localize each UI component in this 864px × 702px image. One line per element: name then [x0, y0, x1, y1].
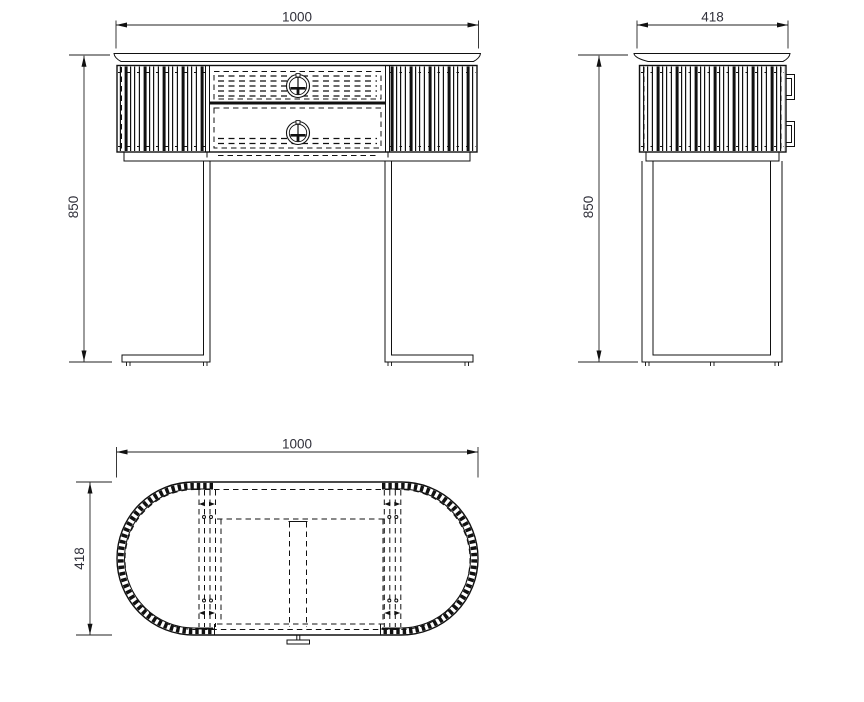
- front-width-dimension: 1000: [116, 10, 479, 49]
- front-leg-feet-pads: [127, 362, 469, 366]
- front-leg-left: [122, 161, 210, 362]
- front-drawer-handle-top: [287, 74, 310, 98]
- plan-hidden-divider: [289, 522, 308, 628]
- side-plinth: [646, 152, 779, 161]
- plan-depth-dimension-label: 418: [72, 547, 87, 570]
- console-table-drawing: 1000 850: [0, 0, 864, 702]
- plan-width-dimension-label: 1000: [282, 437, 312, 452]
- plan-hidden-drawer-box: [217, 519, 387, 624]
- side-view: 418 850: [578, 10, 795, 367]
- plan-view: 1000 418: [72, 437, 478, 645]
- front-slat-panel-right: [390, 67, 476, 152]
- side-width-dimension-label: 418: [701, 10, 724, 25]
- front-width-dimension-label: 1000: [282, 10, 312, 25]
- side-drawer-edge-bottom: [786, 122, 795, 147]
- front-drawer-handle-bottom: [287, 121, 310, 145]
- plan-width-dimension: 1000: [117, 437, 479, 478]
- front-height-dimension: 850: [66, 55, 112, 362]
- front-height-dimension-label: 850: [66, 196, 81, 219]
- side-drawer-edge-top: [786, 75, 795, 100]
- plan-hidden-carcass-outline: [125, 490, 470, 630]
- side-height-dimension-label: 850: [581, 196, 596, 219]
- technical-drawing-canvas: 1000 850: [0, 0, 864, 702]
- front-tabletop: [114, 54, 481, 62]
- side-height-dimension: 850: [578, 55, 638, 362]
- plan-hidden-leg-right: [381, 490, 401, 635]
- front-plinth: [124, 152, 470, 161]
- side-tabletop: [634, 54, 790, 62]
- side-slat-panel: [641, 67, 786, 152]
- side-width-dimension: 418: [637, 10, 788, 49]
- front-leg-right: [385, 161, 473, 362]
- side-leg-frame: [642, 161, 782, 366]
- plan-handle: [287, 635, 310, 644]
- plan-hidden-leg-left: [196, 490, 216, 635]
- front-slat-panel-left: [118, 67, 205, 152]
- plan-tabletop-outline: [117, 482, 478, 635]
- plan-depth-dimension: 418: [72, 482, 112, 635]
- plan-slat-band-right: [382, 486, 474, 631]
- front-drawer-divider: [210, 102, 386, 105]
- front-view: 1000 850: [66, 10, 481, 367]
